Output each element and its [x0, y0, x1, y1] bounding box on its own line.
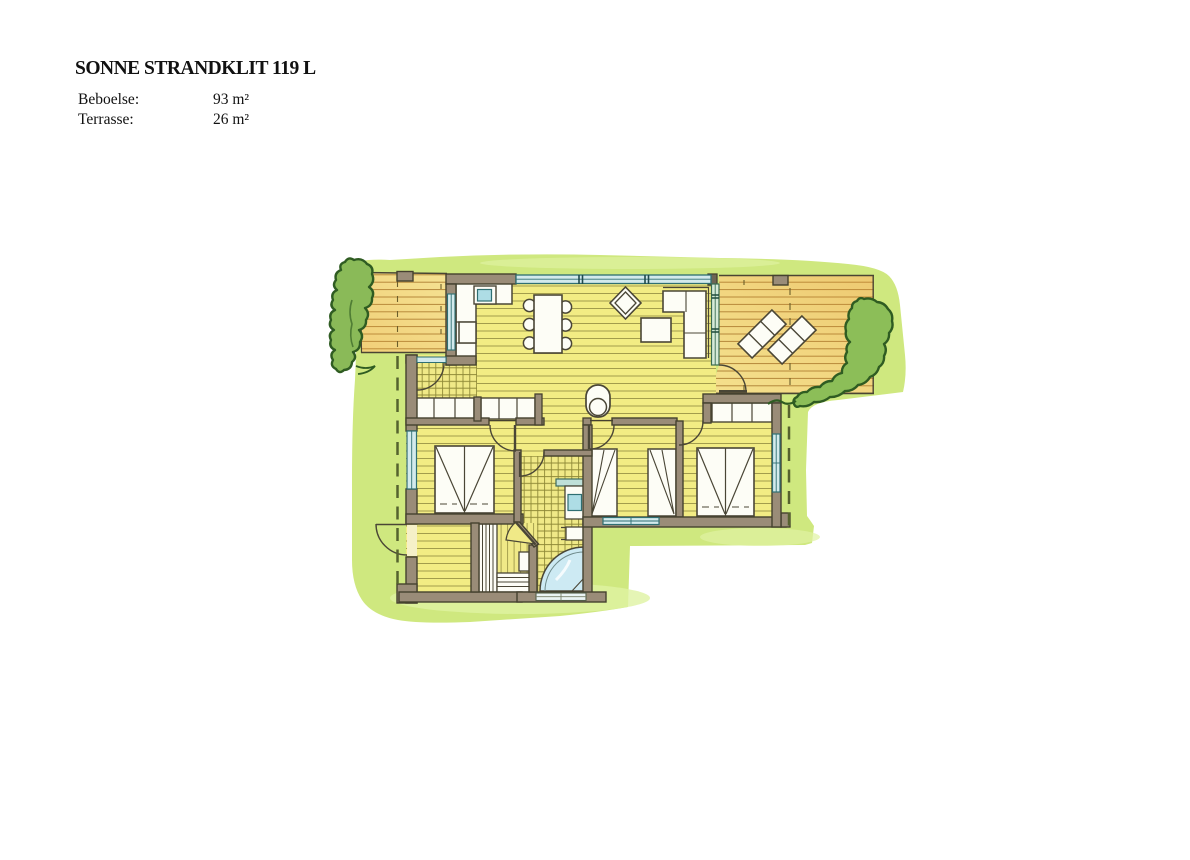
- svg-text:93 m²: 93 m²: [213, 91, 249, 108]
- svg-text:26 m²: 26 m²: [213, 111, 249, 128]
- svg-text:SONNE STRANDKLIT 119 L: SONNE STRANDKLIT 119 L: [75, 58, 316, 79]
- svg-text:Terrasse:: Terrasse:: [78, 111, 134, 128]
- svg-text:Beboelse:: Beboelse:: [78, 91, 139, 108]
